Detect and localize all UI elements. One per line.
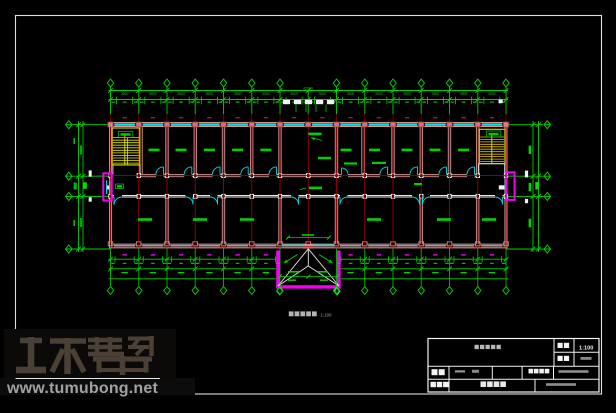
svg-text:3900: 3900	[149, 92, 157, 96]
svg-text:3900: 3900	[262, 92, 270, 96]
svg-text:3900: 3900	[234, 92, 242, 96]
svg-text:3900: 3900	[319, 92, 327, 96]
svg-text:3900: 3900	[206, 92, 214, 96]
svg-text:3900: 3900	[177, 92, 185, 96]
svg-text:3900: 3900	[290, 92, 298, 96]
svg-text:3900: 3900	[347, 92, 355, 96]
svg-text:3900: 3900	[432, 92, 440, 96]
svg-text:3900: 3900	[460, 92, 468, 96]
svg-text:42000: 42000	[303, 86, 313, 90]
svg-text:1:100: 1:100	[579, 345, 593, 351]
svg-text:3900: 3900	[488, 92, 496, 96]
svg-text:1:100: 1:100	[321, 312, 333, 317]
svg-text:3900: 3900	[375, 92, 383, 96]
svg-text:3900: 3900	[403, 92, 411, 96]
svg-text:www.tumubong.net: www.tumubong.net	[6, 380, 158, 397]
svg-text:3900: 3900	[121, 92, 129, 96]
